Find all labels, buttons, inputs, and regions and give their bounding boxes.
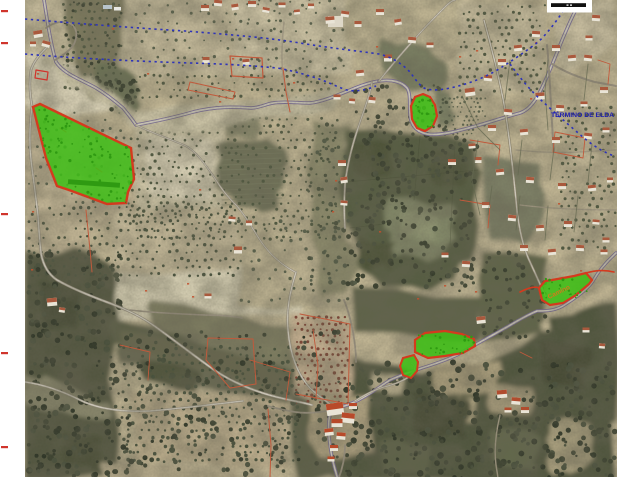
svg-text:TÉRMINO DE ELDA: TÉRMINO DE ELDA bbox=[551, 110, 614, 119]
